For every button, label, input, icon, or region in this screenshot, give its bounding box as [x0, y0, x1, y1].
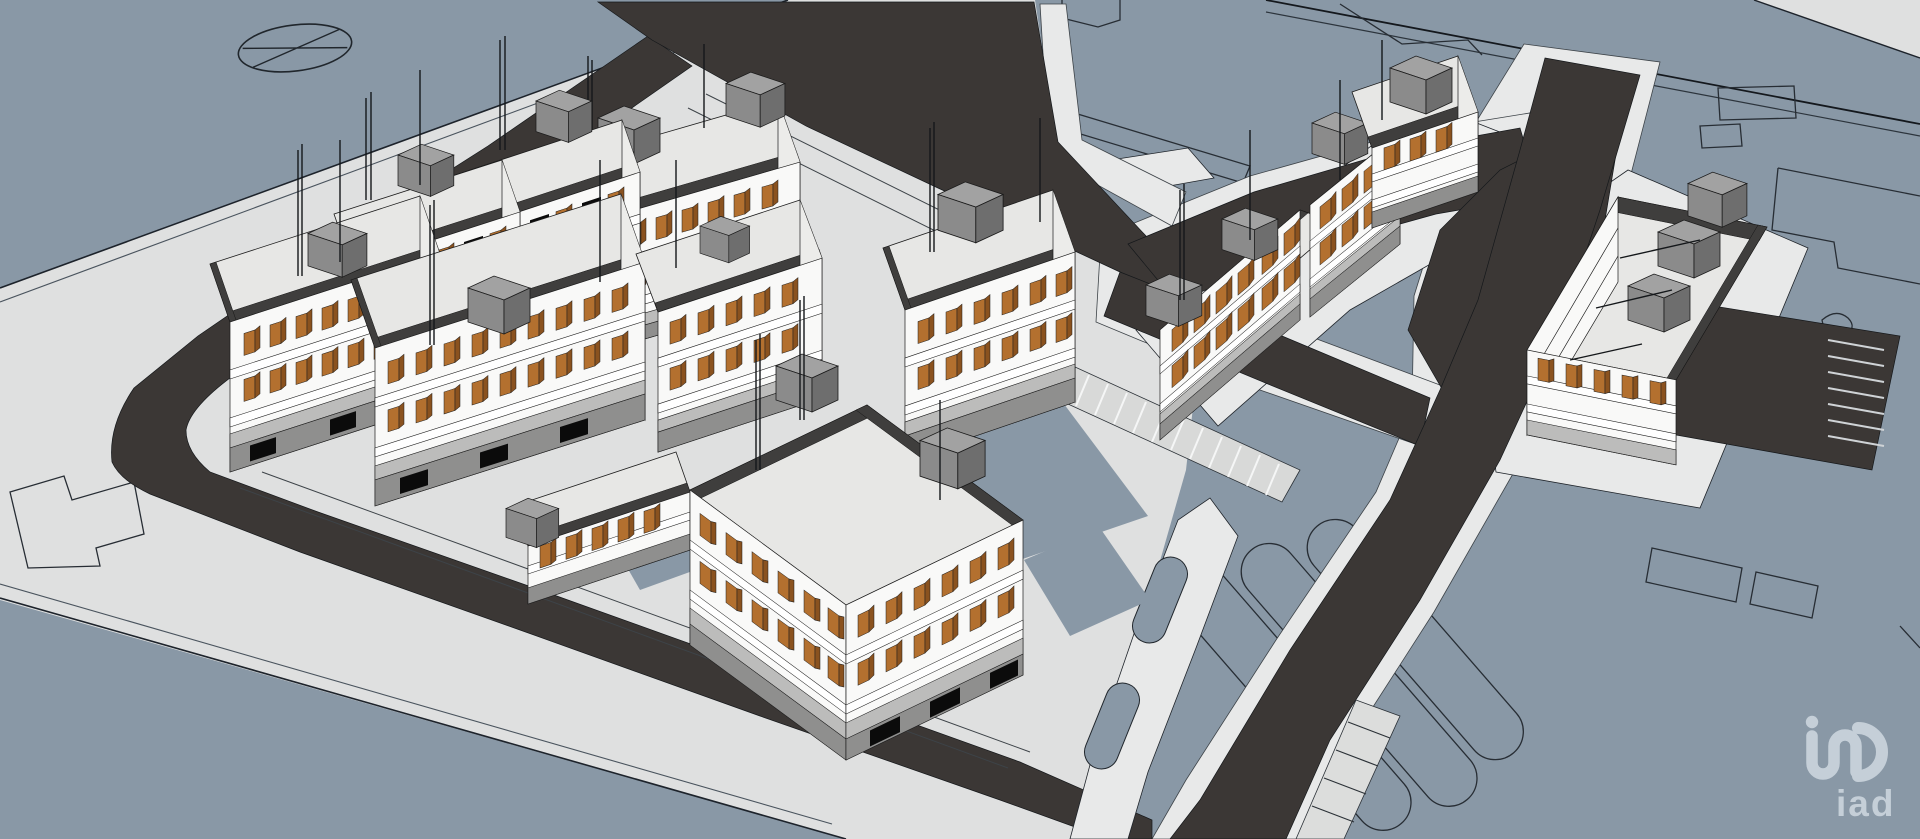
penthouse-box: [726, 72, 785, 127]
iad-logo-text: iad: [1836, 783, 1895, 824]
penthouse-box: [700, 216, 750, 262]
rendering-canvas: iad: [0, 0, 1920, 839]
penthouse-box: [1658, 220, 1720, 278]
penthouse-box: [1628, 274, 1690, 332]
penthouse-box: [776, 354, 838, 412]
penthouse-box: [920, 428, 985, 489]
penthouse-box: [536, 90, 592, 142]
penthouse-box: [468, 276, 530, 334]
penthouse-box: [1688, 172, 1747, 227]
penthouse-box: [1390, 56, 1452, 114]
penthouse-box: [506, 498, 559, 547]
penthouse-box: [398, 144, 454, 196]
iad-logo-dot: [1806, 716, 1818, 728]
site-plan-rendering: iad: [0, 0, 1920, 839]
penthouse-box: [1146, 274, 1202, 326]
penthouse-box: [938, 182, 1003, 243]
penthouse-box: [308, 222, 367, 277]
